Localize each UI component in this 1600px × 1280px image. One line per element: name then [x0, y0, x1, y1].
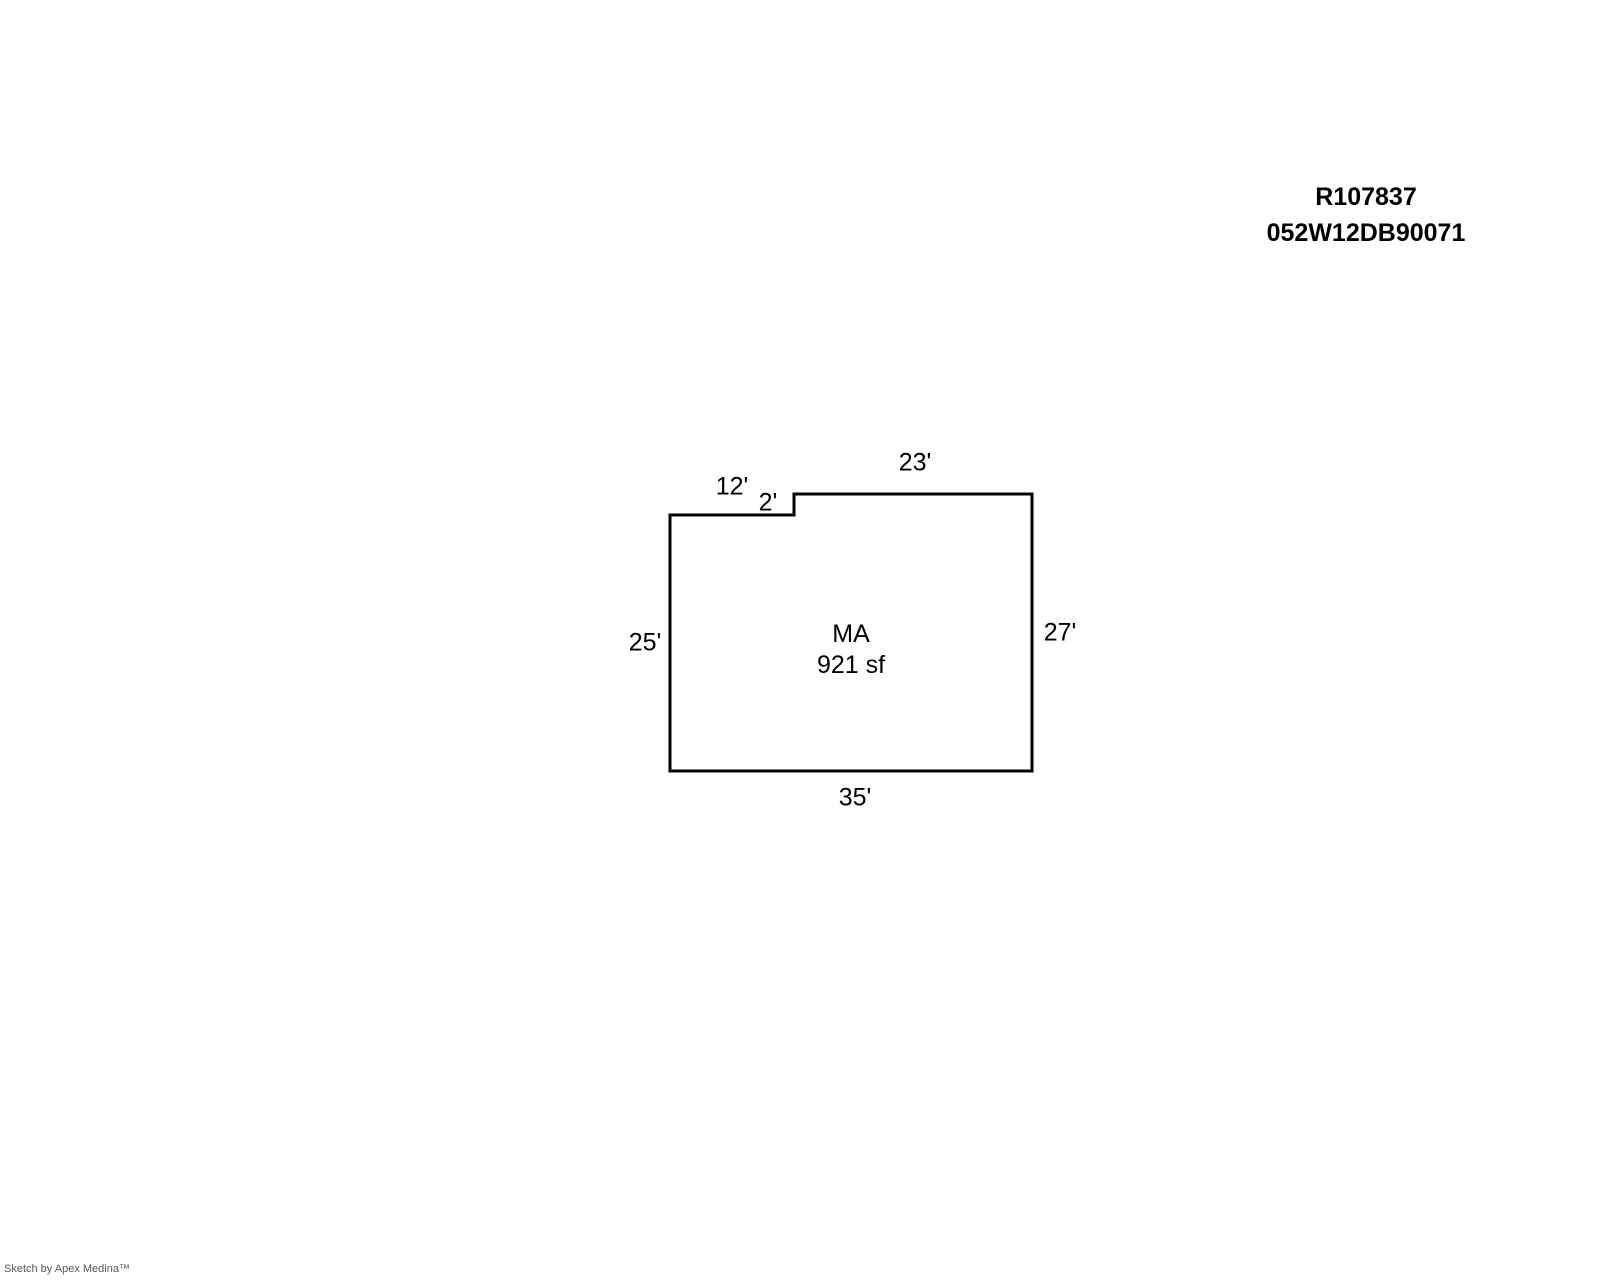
sketch-page: R107837 052W12DB90071 12' 2' 23' 25' 27'…	[0, 0, 1600, 1280]
dim-label-bottom: 35'	[839, 786, 872, 811]
footer-credit: Sketch by Apex Medina™	[4, 1262, 130, 1276]
dim-label-top-left: 12'	[716, 475, 749, 500]
floorplan-svg	[0, 0, 1600, 1280]
room-area-label: 921 sf	[817, 650, 885, 681]
dim-label-top-notch: 2'	[759, 491, 778, 516]
room-block: MA 921 sf	[817, 619, 885, 681]
room-name-label: MA	[817, 619, 885, 650]
dim-label-left: 25'	[629, 631, 662, 656]
dim-label-right: 27'	[1044, 621, 1077, 646]
dim-label-top-right: 23'	[899, 451, 932, 476]
